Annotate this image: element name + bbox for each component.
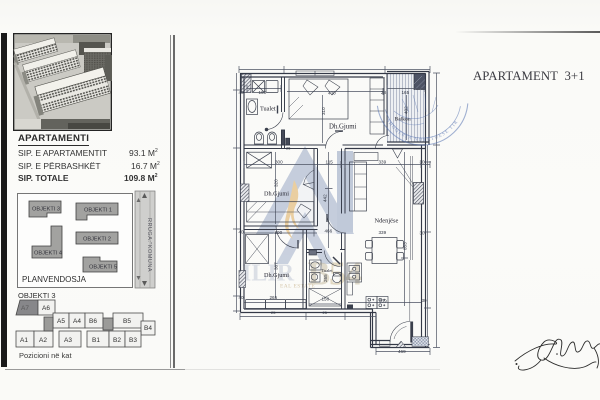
svg-text:Ndenjёse: Ndenjёse	[375, 218, 399, 225]
svg-text:300: 300	[275, 160, 283, 165]
svg-text:A1: A1	[20, 337, 28, 344]
svg-text:30: 30	[420, 231, 426, 236]
svg-text:OBJEKTI 2: OBJEKTI 2	[83, 237, 111, 243]
svg-text:B6: B6	[89, 318, 97, 325]
svg-text:Balkon: Balkon	[395, 117, 411, 123]
svg-text:Dh.Gjumi: Dh.Gjumi	[264, 272, 289, 279]
svg-text:Dh.Gjumi: Dh.Gjumi	[264, 191, 289, 198]
svg-text:442: 442	[323, 194, 328, 202]
svg-text:466: 466	[325, 229, 333, 234]
svg-text:Dh.Gjumi: Dh.Gjumi	[329, 124, 356, 131]
svg-text:A5: A5	[57, 318, 65, 325]
svg-text:Tualet: Tualet	[322, 268, 334, 273]
svg-text:RRUGA:"KOMUNA: RRUGA:"KOMUNA	[146, 218, 152, 272]
svg-text:OBJEKTI 5: OBJEKTI 5	[89, 265, 117, 271]
svg-text:B2: B2	[113, 337, 121, 344]
svg-text:339: 339	[379, 160, 387, 165]
svg-text:A7: A7	[21, 305, 29, 312]
svg-text:265: 265	[323, 274, 328, 282]
svg-text:310: 310	[321, 107, 326, 115]
svg-text:A2: A2	[39, 337, 47, 344]
svg-text:25: 25	[323, 310, 328, 315]
svg-text:A4: A4	[73, 318, 81, 325]
svg-text:469: 469	[398, 349, 406, 354]
svg-text:25: 25	[286, 146, 291, 151]
svg-text:25: 25	[271, 310, 276, 315]
svg-text:OBJEKTI 4: OBJEKTI 4	[34, 251, 62, 257]
svg-text:339: 339	[379, 230, 387, 235]
svg-text:30: 30	[420, 160, 426, 165]
svg-text:40: 40	[239, 230, 245, 235]
svg-text:320: 320	[274, 179, 279, 187]
svg-text:PLANVENDOSJA: PLANVENDOSJA	[22, 275, 87, 284]
svg-text:40: 40	[239, 90, 245, 95]
svg-text:300: 300	[275, 230, 283, 235]
svg-text:B1: B1	[92, 337, 100, 344]
svg-text:B5: B5	[123, 318, 131, 325]
svg-text:B3: B3	[129, 337, 137, 344]
svg-text:B4: B4	[144, 325, 152, 332]
svg-text:387: 387	[274, 262, 279, 270]
svg-text:115: 115	[326, 160, 334, 165]
svg-text:28: 28	[381, 90, 387, 95]
svg-text:Tualet: Tualet	[260, 106, 276, 113]
svg-text:40: 40	[239, 295, 245, 300]
svg-text:OBJEKTI 1: OBJEKTI 1	[84, 208, 112, 214]
svg-text:4: 4	[346, 256, 363, 293]
svg-text:OBJEKTI 3: OBJEKTI 3	[32, 207, 60, 213]
svg-text:165: 165	[402, 90, 410, 95]
svg-text:A3: A3	[64, 337, 72, 344]
svg-text:A6: A6	[42, 305, 50, 312]
svg-text:30: 30	[422, 298, 428, 303]
